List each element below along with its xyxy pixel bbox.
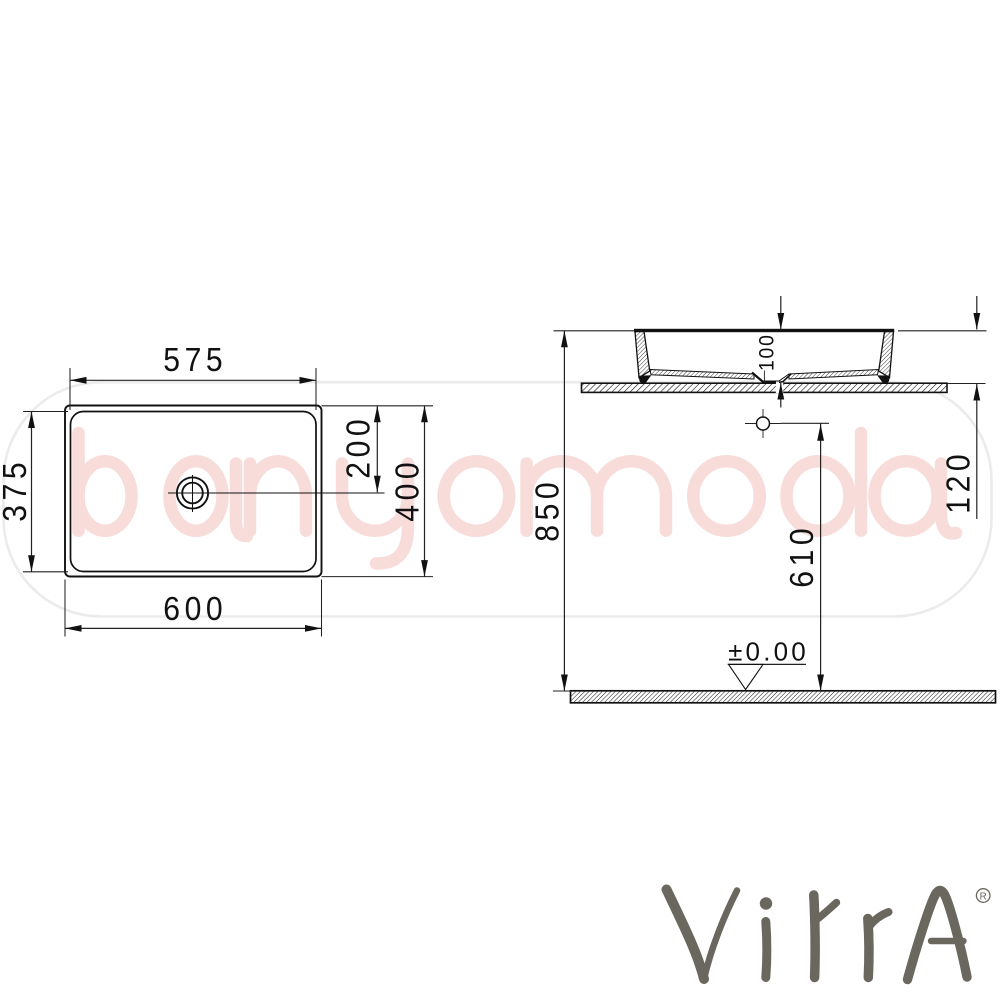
svg-text:±0.00: ±0.00 xyxy=(728,637,809,667)
svg-text:400: 400 xyxy=(388,458,426,522)
svg-text:600: 600 xyxy=(163,590,227,628)
svg-text:850: 850 xyxy=(528,478,566,542)
svg-text:100: 100 xyxy=(755,333,779,371)
svg-text:200: 200 xyxy=(339,415,377,479)
svg-text:610: 610 xyxy=(783,524,821,588)
svg-text:375: 375 xyxy=(0,458,33,522)
svg-text:120: 120 xyxy=(939,450,977,514)
svg-text:R: R xyxy=(980,891,987,902)
svg-text:575: 575 xyxy=(163,341,227,379)
